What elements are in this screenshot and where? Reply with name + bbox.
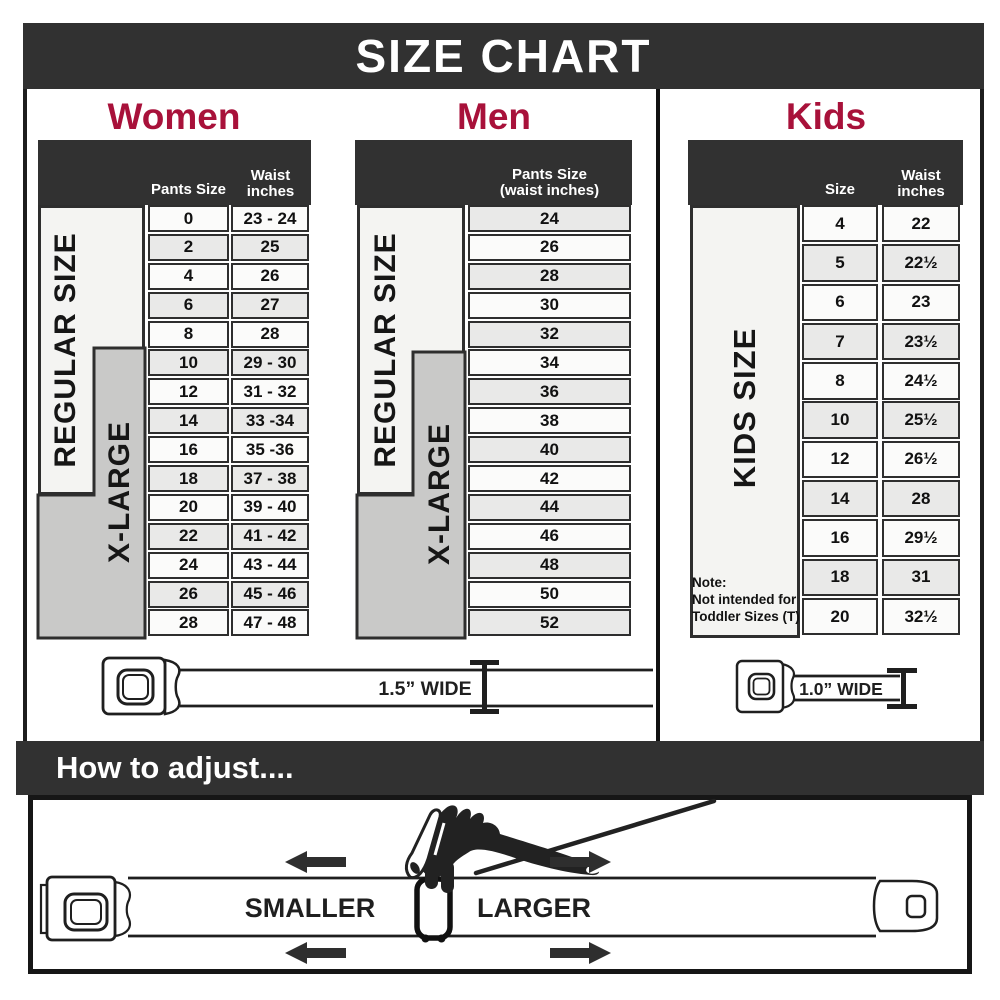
table-cell: 47 - 48 (231, 609, 309, 636)
adult-belt-width-label: 1.5” WIDE (378, 678, 471, 700)
table-cell: 32½ (882, 598, 960, 635)
table-cell: 7 (802, 323, 878, 360)
kids-section-title: Kids (786, 96, 866, 138)
larger-label: LARGER (477, 893, 591, 923)
table-cell: 0 (148, 205, 229, 232)
table-cell: 23 - 24 (231, 205, 309, 232)
table-cell: 26 (231, 263, 309, 290)
kids-table-header: Size Waist inches (688, 140, 963, 205)
table-cell: 2 (148, 234, 229, 261)
table-cell: 27 (231, 292, 309, 319)
kids-belt-illustration: 1.0” WIDE (720, 650, 950, 720)
table-cell: 24 (468, 205, 631, 232)
kids-note: Note: Not intended for Toddler Sizes (T) (692, 574, 800, 625)
arrow-right-icon (550, 942, 611, 964)
table-cell: 26 (468, 234, 631, 261)
table-cell: 8 (802, 362, 878, 399)
table-cell: 26 (148, 581, 229, 608)
kids-belt-width-label: 1.0” WIDE (799, 679, 883, 699)
table-cell: 20 (148, 494, 229, 521)
table-cell: 36 (468, 378, 631, 405)
table-cell: 20 (802, 598, 878, 635)
men-table-header: Pants Size (waist inches) (355, 140, 632, 205)
table-cell: 6 (148, 292, 229, 319)
table-cell: 28 (148, 609, 229, 636)
table-cell: 34 (468, 349, 631, 376)
arrow-left-icon (285, 851, 346, 873)
table-cell: 14 (148, 407, 229, 434)
table-cell: 23 (882, 284, 960, 321)
table-cell: 28 (882, 480, 960, 517)
kids-waist-header: Waist inches (882, 168, 960, 200)
size-chart-page: SIZE CHART Women Pants Size Waist inches… (0, 0, 1000, 1000)
table-cell: 46 (468, 523, 631, 550)
table-cell: 24 (148, 552, 229, 579)
kids-size-label: KIDS SIZE (727, 328, 763, 489)
table-cell: 16 (802, 519, 878, 556)
women-section-title: Women (108, 96, 241, 138)
table-cell: 26½ (882, 441, 960, 478)
table-cell: 31 (882, 559, 960, 596)
table-cell: 45 - 46 (231, 581, 309, 608)
women-waist-column: 23 - 242526272829 - 3031 - 3233 -3435 -3… (231, 205, 309, 636)
table-cell: 25 (231, 234, 309, 261)
table-cell: 38 (468, 407, 631, 434)
table-cell: 29½ (882, 519, 960, 556)
arrow-left-icon (285, 942, 346, 964)
table-cell: 14 (802, 480, 878, 517)
adjust-illustration: SMALLER LARGER (28, 795, 972, 974)
how-to-adjust-heading: How to adjust.... (16, 741, 294, 795)
kids-size-header: Size (802, 182, 878, 198)
smaller-label: SMALLER (245, 893, 376, 923)
hand-pinch-icon (406, 805, 602, 893)
table-cell: 5 (802, 244, 878, 281)
table-cell: 16 (148, 436, 229, 463)
table-cell: 30 (468, 292, 631, 319)
women-regular-size-label: REGULAR SIZE (49, 232, 83, 467)
kids-waist-column: 2222½2323½24½25½26½2829½3132½ (882, 205, 960, 635)
table-cell: 50 (468, 581, 631, 608)
table-cell: 8 (148, 321, 229, 348)
table-cell: 52 (468, 609, 631, 636)
table-cell: 28 (468, 263, 631, 290)
seatbelt-buckle-icon (103, 658, 179, 714)
kids-section-divider (656, 89, 660, 741)
table-cell: 41 - 42 (231, 523, 309, 550)
table-cell: 28 (231, 321, 309, 348)
table-cell: 12 (148, 378, 229, 405)
table-cell: 22 (882, 205, 960, 242)
table-cell: 10 (148, 349, 229, 376)
table-cell: 32 (468, 321, 631, 348)
men-xlarge-label: X-LARGE (423, 423, 457, 565)
table-cell: 42 (468, 465, 631, 492)
page-title: SIZE CHART (356, 30, 652, 82)
table-cell: 35 -36 (231, 436, 309, 463)
size-chart-title-bar: SIZE CHART (23, 23, 984, 89)
table-cell: 22½ (882, 244, 960, 281)
table-cell: 4 (148, 263, 229, 290)
table-cell: 22 (148, 523, 229, 550)
how-to-adjust-bar: How to adjust.... (16, 741, 984, 795)
men-section-title: Men (457, 96, 531, 138)
table-cell: 12 (802, 441, 878, 478)
women-pants-size-header: Pants Size (146, 182, 231, 198)
table-cell: 10 (802, 401, 878, 438)
table-cell: 39 - 40 (231, 494, 309, 521)
men-pants-size-header: Pants Size (waist inches) (468, 167, 631, 199)
table-cell: 18 (802, 559, 878, 596)
women-table-header: Pants Size Waist inches (38, 140, 311, 205)
seatbelt-buckle-icon (737, 661, 794, 712)
belt-tip-icon (874, 881, 937, 931)
seatbelt-buckle-icon (41, 877, 130, 940)
table-cell: 18 (148, 465, 229, 492)
table-cell: 23½ (882, 323, 960, 360)
table-cell: 24½ (882, 362, 960, 399)
table-cell: 33 -34 (231, 407, 309, 434)
table-cell: 40 (468, 436, 631, 463)
kids-size-column: 45678101214161820 (802, 205, 878, 635)
table-cell: 31 - 32 (231, 378, 309, 405)
women-xlarge-label: X-LARGE (103, 421, 137, 563)
men-pants-size-column: 242628303234363840424446485052 (468, 205, 631, 636)
women-pants-size-column: 0246810121416182022242628 (148, 205, 229, 636)
table-cell: 43 - 44 (231, 552, 309, 579)
table-cell: 44 (468, 494, 631, 521)
men-regular-size-label: REGULAR SIZE (369, 232, 403, 467)
adult-belt-illustration: 1.5” WIDE (30, 650, 660, 726)
table-cell: 4 (802, 205, 878, 242)
table-cell: 29 - 30 (231, 349, 309, 376)
table-cell: 37 - 38 (231, 465, 309, 492)
table-cell: 6 (802, 284, 878, 321)
women-waist-header: Waist inches (231, 168, 310, 200)
table-cell: 25½ (882, 401, 960, 438)
width-marker-icon (887, 668, 917, 709)
table-cell: 48 (468, 552, 631, 579)
